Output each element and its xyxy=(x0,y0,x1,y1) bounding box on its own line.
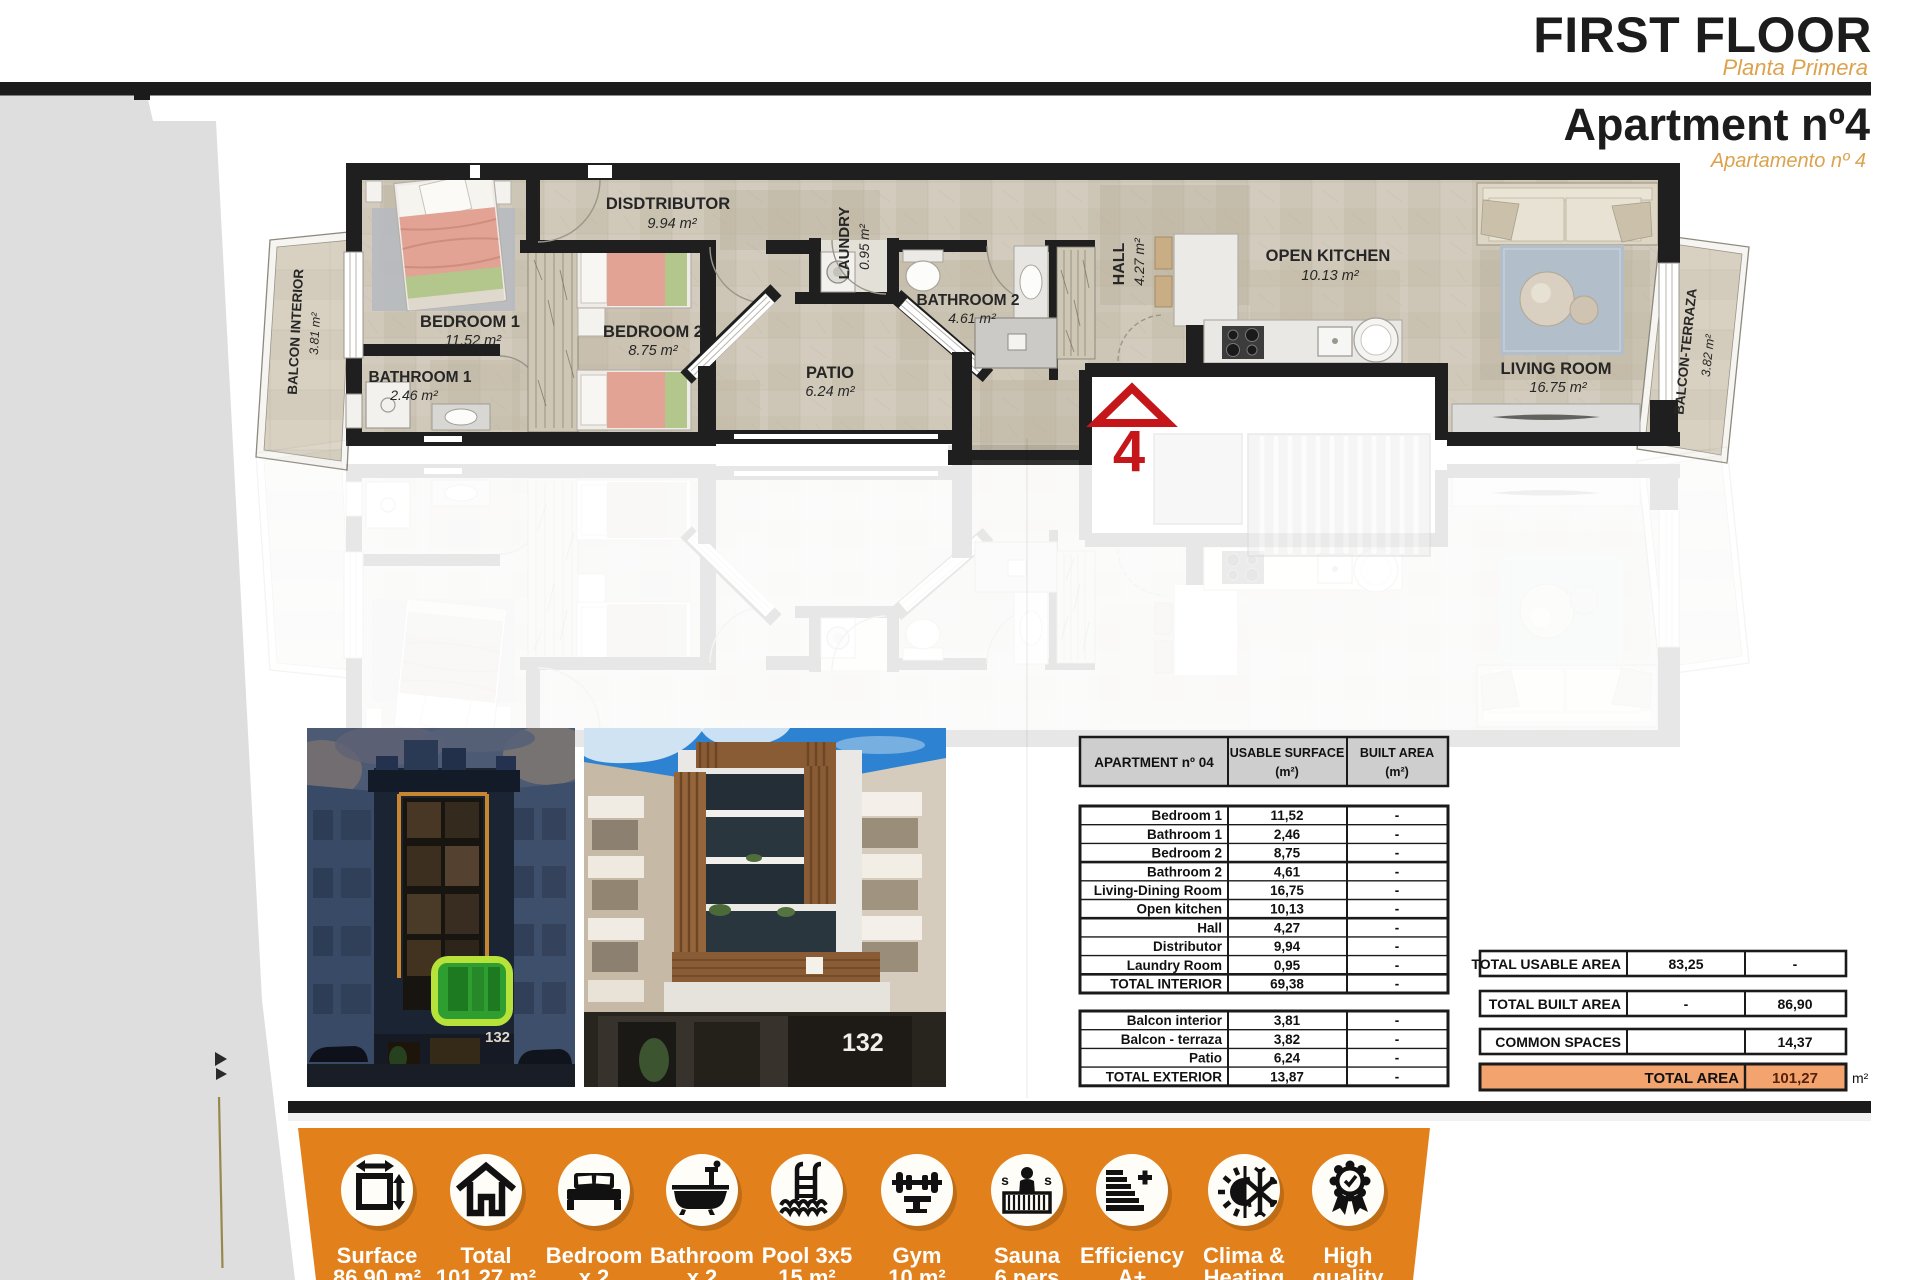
svg-text:Bedroom 1: Bedroom 1 xyxy=(1151,808,1222,823)
svg-text:Hall: Hall xyxy=(1197,920,1222,935)
svg-text:TOTAL AREA: TOTAL AREA xyxy=(1645,1070,1740,1087)
svg-text:Living-Dining Room: Living-Dining Room xyxy=(1094,883,1222,898)
svg-text:TOTAL BUILT AREA: TOTAL BUILT AREA xyxy=(1489,996,1621,1012)
svg-text:132: 132 xyxy=(485,1029,510,1046)
svg-text:10.13 m²: 10.13 m² xyxy=(1301,268,1359,284)
svg-text:9.94 m²: 9.94 m² xyxy=(647,216,697,232)
svg-text:-: - xyxy=(1395,1013,1400,1028)
svg-text:13,87: 13,87 xyxy=(1270,1069,1304,1084)
svg-text:4.61 m²: 4.61 m² xyxy=(948,310,997,326)
svg-text:3.81 m²: 3.81 m² xyxy=(307,311,323,355)
svg-text:-: - xyxy=(1395,958,1400,973)
svg-text:Heating: Heating xyxy=(1204,1265,1285,1280)
svg-text:x 2: x 2 xyxy=(687,1265,718,1280)
svg-text:0.95 m²: 0.95 m² xyxy=(857,224,872,270)
svg-text:(m²): (m²) xyxy=(1385,765,1409,779)
svg-text:s: s xyxy=(1001,1172,1009,1188)
svg-text:LIVING ROOM: LIVING ROOM xyxy=(1501,360,1612,378)
svg-text:4,27: 4,27 xyxy=(1274,920,1300,935)
svg-text:2.46 m²: 2.46 m² xyxy=(389,387,439,403)
svg-text:132: 132 xyxy=(842,1029,884,1057)
svg-text:Bedroom 2: Bedroom 2 xyxy=(1151,846,1222,861)
svg-text:86,90: 86,90 xyxy=(1777,996,1812,1012)
svg-text:-: - xyxy=(1395,1032,1400,1047)
svg-text:-: - xyxy=(1684,996,1689,1012)
svg-text:83,25: 83,25 xyxy=(1668,956,1703,972)
svg-text:-: - xyxy=(1395,846,1400,861)
svg-text:Balcon interior: Balcon interior xyxy=(1127,1013,1223,1028)
svg-text:TOTAL USABLE AREA: TOTAL USABLE AREA xyxy=(1471,956,1621,972)
svg-text:Laundry Room: Laundry Room xyxy=(1127,958,1222,973)
svg-text:2,46: 2,46 xyxy=(1274,827,1301,842)
svg-text:BATHROOM 2: BATHROOM 2 xyxy=(916,292,1019,309)
svg-text:16.75 m²: 16.75 m² xyxy=(1529,380,1587,396)
svg-text:4.27 m²: 4.27 m² xyxy=(1131,237,1147,286)
svg-text:BEDROOM 2: BEDROOM 2 xyxy=(603,323,703,341)
svg-text:3,81: 3,81 xyxy=(1274,1013,1301,1028)
svg-text:PATIO: PATIO xyxy=(806,364,854,382)
svg-text:Distributor: Distributor xyxy=(1153,939,1223,954)
svg-text:0,95: 0,95 xyxy=(1274,958,1301,973)
svg-text:10,13: 10,13 xyxy=(1270,902,1304,917)
svg-text:Bathroom 2: Bathroom 2 xyxy=(1147,864,1222,879)
svg-text:69,38: 69,38 xyxy=(1270,977,1304,992)
svg-text:HALL: HALL xyxy=(1111,242,1128,285)
svg-text:-: - xyxy=(1395,1051,1400,1066)
svg-text:10 m²: 10 m² xyxy=(888,1265,945,1280)
svg-text:x 2: x 2 xyxy=(579,1265,610,1280)
svg-text:BATHROOM 1: BATHROOM 1 xyxy=(368,369,471,386)
svg-text:-: - xyxy=(1395,883,1400,898)
svg-text:4,61: 4,61 xyxy=(1274,864,1301,879)
svg-text:COMMON SPACES: COMMON SPACES xyxy=(1495,1034,1621,1050)
svg-text:Open kitchen: Open kitchen xyxy=(1136,902,1222,917)
svg-text:quality: quality xyxy=(1313,1265,1385,1280)
svg-text:-: - xyxy=(1395,920,1400,935)
svg-text:-: - xyxy=(1395,939,1400,954)
svg-text:15 m²: 15 m² xyxy=(778,1265,835,1280)
svg-text:-: - xyxy=(1793,956,1798,972)
svg-text:BEDROOM 1: BEDROOM 1 xyxy=(420,313,520,331)
svg-text:-: - xyxy=(1395,827,1400,842)
svg-text:9,94: 9,94 xyxy=(1274,939,1301,954)
svg-text:-: - xyxy=(1395,808,1400,823)
svg-text:s: s xyxy=(1044,1172,1052,1188)
svg-text:8,75: 8,75 xyxy=(1274,846,1301,861)
svg-text:TOTAL INTERIOR: TOTAL INTERIOR xyxy=(1110,977,1222,992)
svg-text:Planta Primera: Planta Primera xyxy=(1722,55,1868,80)
svg-text:APARTMENT nº 04: APARTMENT nº 04 xyxy=(1094,755,1214,770)
svg-text:-: - xyxy=(1395,864,1400,879)
svg-text:-: - xyxy=(1395,902,1400,917)
svg-text:(m²): (m²) xyxy=(1275,765,1299,779)
svg-text:A+: A+ xyxy=(1118,1265,1147,1280)
svg-text:8.75 m²: 8.75 m² xyxy=(628,343,678,359)
svg-text:14,37: 14,37 xyxy=(1777,1034,1812,1050)
svg-text:6 pers: 6 pers xyxy=(995,1265,1060,1280)
svg-text:DISDTRIBUTOR: DISDTRIBUTOR xyxy=(606,195,730,213)
svg-text:11,52: 11,52 xyxy=(1270,808,1303,823)
svg-text:Patio: Patio xyxy=(1189,1051,1222,1066)
svg-text:BUILT AREA: BUILT AREA xyxy=(1360,746,1434,760)
svg-text:11.52 m²: 11.52 m² xyxy=(445,333,502,349)
svg-text:m²: m² xyxy=(1852,1070,1869,1086)
svg-text:3,82: 3,82 xyxy=(1274,1032,1300,1047)
svg-text:-: - xyxy=(1395,1069,1400,1084)
svg-text:Bathroom 1: Bathroom 1 xyxy=(1147,827,1223,842)
svg-text:6,24: 6,24 xyxy=(1274,1051,1301,1066)
svg-text:4: 4 xyxy=(1113,419,1145,484)
svg-text:16,75: 16,75 xyxy=(1270,883,1304,898)
svg-text:Apartamento nº 4: Apartamento nº 4 xyxy=(1710,150,1866,172)
svg-text:101,27: 101,27 xyxy=(1772,1070,1818,1087)
svg-text:TOTAL EXTERIOR: TOTAL EXTERIOR xyxy=(1106,1069,1223,1084)
svg-text:-: - xyxy=(1395,977,1400,992)
svg-text:Balcon - terraza: Balcon - terraza xyxy=(1121,1032,1223,1047)
svg-text:101.27 m²: 101.27 m² xyxy=(436,1265,536,1280)
svg-text:Apartment nº4: Apartment nº4 xyxy=(1564,99,1870,150)
svg-text:LAUNDRY: LAUNDRY xyxy=(836,207,853,280)
svg-text:86.90 m²: 86.90 m² xyxy=(333,1265,421,1280)
svg-text:6.24 m²: 6.24 m² xyxy=(805,384,855,400)
svg-text:OPEN KITCHEN: OPEN KITCHEN xyxy=(1266,247,1391,265)
svg-text:USABLE SURFACE: USABLE SURFACE xyxy=(1230,746,1345,760)
